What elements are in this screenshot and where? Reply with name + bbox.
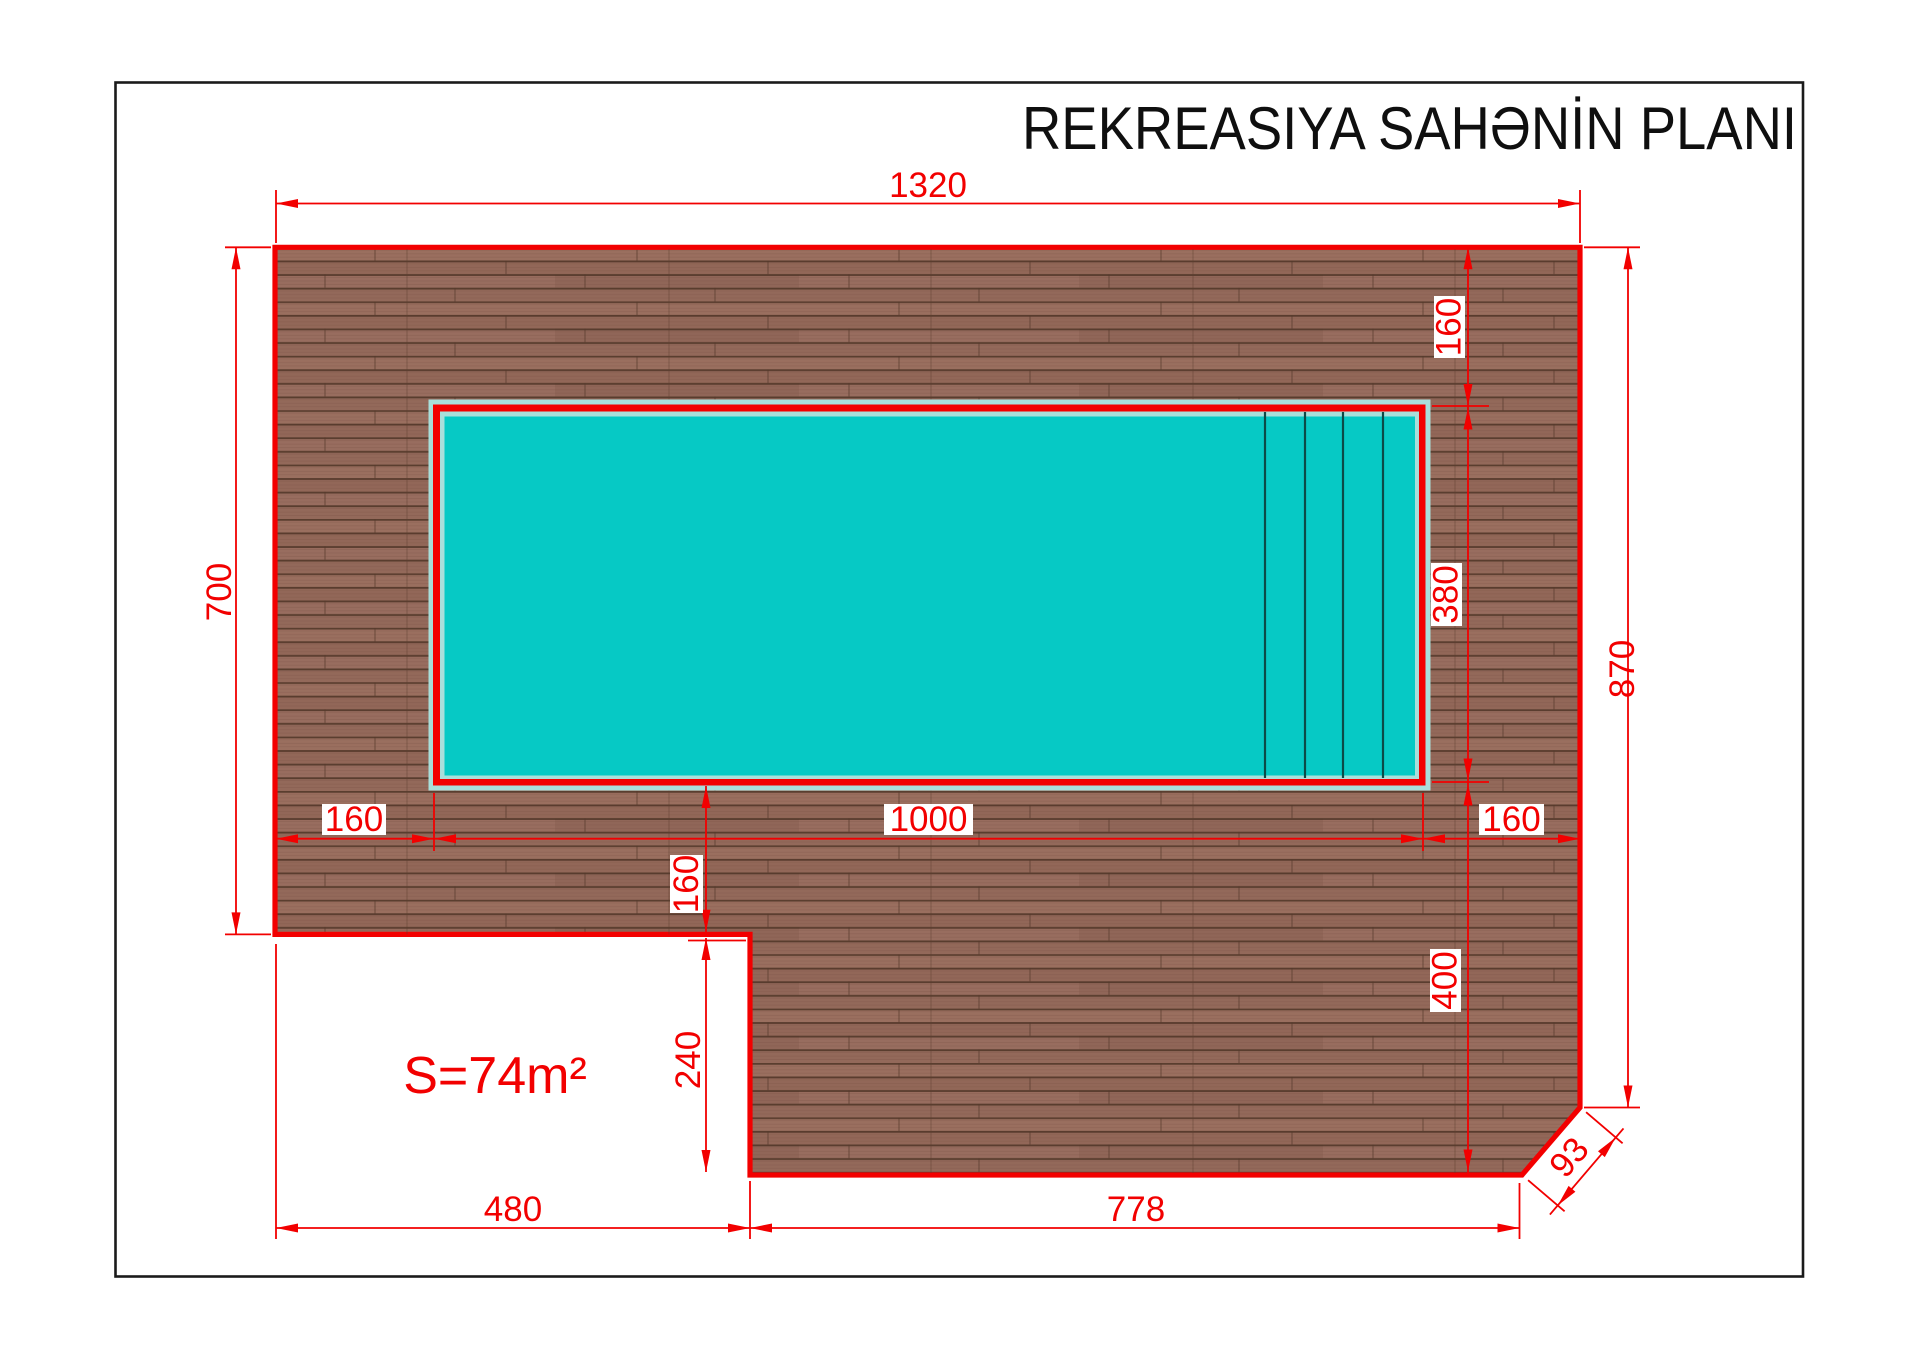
svg-text:160: 160 (667, 855, 706, 913)
svg-text:480: 480 (484, 1190, 542, 1229)
svg-text:700: 700 (200, 563, 239, 621)
svg-text:778: 778 (1107, 1190, 1165, 1229)
svg-text:400: 400 (1426, 951, 1465, 1009)
svg-text:REKREASIYA SAHƏNİN PLANI: REKREASIYA SAHƏNİN PLANI (1022, 95, 1797, 162)
svg-text:160: 160 (1482, 800, 1540, 839)
svg-text:1000: 1000 (890, 800, 968, 839)
svg-text:S=74m²: S=74m² (403, 1047, 587, 1105)
svg-text:240: 240 (669, 1031, 708, 1089)
svg-text:870: 870 (1603, 640, 1642, 698)
svg-text:160: 160 (1430, 298, 1469, 356)
svg-text:1320: 1320 (889, 166, 967, 205)
svg-text:160: 160 (325, 800, 383, 839)
svg-text:380: 380 (1427, 565, 1466, 623)
